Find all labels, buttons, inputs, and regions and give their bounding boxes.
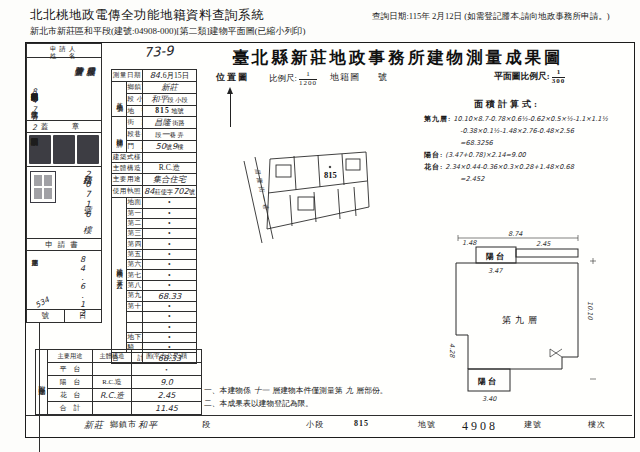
table-cell: 第十層: [127, 301, 142, 311]
calc-body: 2.34×0.44-0.36×0.3×0.28+1.48×0.68: [445, 163, 574, 171]
location-map-label: 位置圖: [216, 71, 249, 84]
scale-denominator: 1200: [299, 80, 317, 88]
table-cell: 50號9樓: [142, 141, 196, 153]
cell-text: 十一: [251, 386, 273, 395]
cell-text: 815: [155, 106, 169, 115]
cell-text: •: [168, 240, 171, 249]
footer-segment: 和平: [138, 419, 158, 432]
table-cell: 第九層: [127, 290, 142, 301]
table-cell: R.C.造: [93, 389, 132, 402]
table-cell: 主要用途: [48, 350, 93, 363]
cell-text: R.C.造: [159, 163, 181, 172]
query-date: 查詢日期:115年 2月12日 (如需登記謄本,請向地政事務所申請。): [372, 11, 610, 23]
table-cell: 第一層: [127, 208, 142, 218]
footer-segment: 地號: [418, 419, 436, 430]
stamp-seal: [77, 135, 99, 164]
table-cell: •: [142, 332, 196, 342]
dim-mid: 3.47: [488, 267, 503, 275]
table-cell: •: [142, 249, 196, 259]
table-cell: [142, 153, 196, 163]
cell-text: 九: [343, 386, 357, 395]
page-code-handwritten: 73-9: [144, 43, 174, 60]
cell-text: R.C.造: [102, 378, 121, 385]
cell-text: 9.0: [160, 378, 173, 387]
table-cell: 面(平方公尺)積: [132, 350, 202, 363]
cell-text: 莊使字: [154, 188, 173, 195]
no-day-row: 號 日: [27, 310, 101, 322]
table-cell: •: [142, 218, 196, 228]
table-cell: •: [142, 208, 196, 218]
footer-segment: 段: [202, 419, 211, 430]
table-row: 使用執照84莊使字702號: [112, 186, 197, 198]
calc-line: 陽台:(3.47+0.78)×2.14=9.00: [424, 149, 640, 161]
table-cell: 集合住宅: [142, 174, 196, 186]
cell-text: •: [168, 302, 171, 311]
calc-body: (3.47+0.78)×2.14=9.00: [445, 151, 525, 159]
cell-text: •: [168, 229, 171, 238]
table-cell: [93, 402, 132, 415]
calc-body: 10.10×8.7-0.78×0.6½-0.62×0.5×½-1.1×1.1½: [453, 115, 608, 123]
table-cell: 84.6月15日: [142, 70, 196, 82]
sheet-no-suffix: 號: [378, 71, 387, 84]
cell-text: •: [168, 323, 171, 332]
table-cell: 第四層: [127, 239, 142, 249]
table-cell: 68.33: [142, 290, 196, 301]
cell-text: •: [165, 366, 167, 373]
north-arrow-icon: [226, 87, 236, 127]
table-cell: •: [142, 260, 196, 270]
footer-divider: [26, 415, 632, 416]
cell-text: 集合住宅: [153, 174, 186, 184]
square-seal-icon: [30, 171, 56, 203]
table-cell: 主體構造: [112, 163, 143, 174]
dim-right: 10.10: [586, 301, 594, 320]
file-date-handwritten: 84.6.12: [78, 255, 87, 318]
table-cell: •: [142, 322, 196, 332]
table-cell: 陽 台: [48, 376, 93, 389]
table-cell: •: [142, 229, 196, 239]
table-cell: 第八層: [127, 280, 142, 290]
table-cell: 815 地號: [142, 106, 196, 117]
file-no-handwritten: 534: [34, 295, 51, 310]
area-calc: 第九層:10.10×8.7-0.78×0.6½-0.62×0.5×½-1.1×1…: [424, 113, 640, 185]
table-cell: 建物門牌: [112, 117, 127, 153]
table-cell: •: [142, 239, 196, 249]
table-row: 建築式樣: [112, 153, 197, 163]
table-cell: 2.45: [132, 389, 202, 402]
applicant-seal-area: [27, 133, 101, 167]
side-note-text: 本建物平面圖及建物面積係使用執照84莊使字第702號設計圖或竣工平面圖轉繪計算: [27, 87, 41, 132]
parcel-815-label: 815: [324, 170, 337, 180]
cell-text: 11.45: [155, 404, 178, 413]
cell-text: 2.45: [158, 391, 176, 400]
plan-scale: 平面圖比例尺:1300: [494, 69, 567, 85]
applicant-name-col1: 幸福建設公司: [84, 60, 97, 119]
cell-text: 二、本成果表以建物登記為限。: [204, 399, 313, 408]
cell-text: 樓: [177, 143, 183, 150]
table-row: 主要用途集合住宅: [112, 174, 197, 186]
cell-text: 段 小段: [168, 96, 188, 103]
table-row: 基地地號鄉鎮市區新莊: [112, 82, 197, 94]
cell-text: •: [168, 271, 171, 280]
annex-row: 花 台R.C.造2.45: [36, 389, 202, 402]
balcony-top-label: 陽台: [486, 251, 506, 261]
cell-text: 層部份。: [356, 386, 387, 395]
footer-segment: 815: [354, 419, 369, 428]
table-cell: [93, 363, 132, 376]
floor-label: 第九層: [502, 315, 541, 325]
table-cell: 9.0: [132, 376, 202, 389]
calc-head: 第九層:: [424, 115, 451, 123]
table-cell: R.C.造: [93, 376, 132, 389]
stamp-seal: [53, 135, 75, 164]
cell-text: 和平: [151, 94, 167, 104]
calc-body: =68.3256: [460, 139, 493, 147]
calc-head: 花台:: [424, 163, 443, 171]
table-row: 測量日期84.6月15日: [112, 70, 197, 82]
table-cell: [127, 312, 142, 322]
calc-line: -0.38×0.1½-1.48×2.76-0.48×2.56: [460, 125, 640, 137]
cell-text: 層建物本件僅測量第: [272, 386, 342, 395]
system-title: 北北桃地政電傳全功能地籍資料查詢系統: [30, 7, 264, 24]
application-label: 申請書: [27, 239, 101, 251]
cadastral-map-label: 地籍圖: [330, 71, 360, 84]
cell-text: 50: [155, 141, 165, 151]
calc-body: =2.452: [460, 175, 484, 183]
table-cell: 昌隆 街路: [142, 117, 196, 129]
table-cell: 和平段 小段: [142, 94, 196, 106]
annex-row: 陽 台R.C.造9.0: [36, 376, 202, 389]
no-label: 號: [27, 310, 65, 322]
table-cell: 主體構造: [93, 350, 132, 363]
cell-text: 702: [30, 105, 39, 132]
applicant-name-col2: 董事長陳公實: [72, 60, 85, 119]
seal-and-address: 松江路207號16樓: [27, 167, 101, 238]
table-cell: •: [132, 363, 202, 376]
table-cell: 第三層: [127, 229, 142, 239]
table-cell: 附屬建物: [36, 350, 48, 415]
table-cell: 花 台: [48, 389, 93, 402]
applicant-header: 申請人 姓 名: [27, 44, 101, 58]
table-cell: 地下層: [127, 332, 142, 342]
table-cell: 新莊: [142, 82, 196, 94]
plan-scale-label: 平面圖比例尺:: [494, 71, 550, 81]
area-calc-title: 面積計算式:: [474, 98, 540, 111]
location-map: 815 昌隆街一巷: [236, 147, 376, 249]
table-cell: 建築面積(平方公尺): [112, 198, 127, 353]
table-cell: 段一巷 弄: [142, 129, 196, 141]
footer-segment: 新莊: [84, 419, 104, 432]
table-cell: 平 台: [48, 363, 93, 376]
cell-text: 84: [30, 87, 39, 105]
cell-text: 6月15日: [163, 71, 190, 80]
cell-text: •: [168, 312, 171, 321]
dim-top: 8.74: [508, 231, 523, 238]
table-cell: 街 路: [127, 117, 142, 129]
day-label: 日: [65, 310, 102, 322]
table-row: 主體構造R.C.造: [112, 163, 197, 174]
scale-label: 比例尺:: [269, 73, 297, 83]
table-cell: R.C.造: [142, 163, 196, 174]
cell-text: •: [168, 198, 171, 207]
table-cell: 地面層: [127, 198, 142, 208]
stamp-seal: [29, 135, 51, 164]
annex-row: 合 計11.45: [36, 402, 202, 415]
main-info-table: 測量日期84.6月15日基地地號鄉鎮市區新莊段 小段和平段 小段地 號815 地…: [111, 69, 197, 364]
notes: 一、本建物係十一層建物本件僅測量第九層部份。二、本成果表以建物登記為限。: [204, 385, 514, 410]
applicant-address: 松江路207號16樓: [82, 169, 93, 219]
footer-strip: 新莊鄉鎮市和平段小段815地號4908建號樓次: [26, 417, 632, 433]
annex-row: 平 台•: [36, 363, 202, 376]
application-no-box: 莊建測字第 84.6.12 534: [27, 251, 101, 310]
table-cell: 基地地號: [112, 82, 127, 117]
calc-line: =2.452: [460, 173, 640, 185]
document-frame: 73-9 臺北縣新莊地政事務所建物測量成果圖 申請人 姓 名 幸福建設公司 董事…: [25, 42, 635, 438]
table-cell: 主要用途: [112, 174, 143, 186]
applicant-column: 申請人 姓 名 幸福建設公司 董事長陳公實 蓋 章 松江路207號16樓 申請書…: [26, 43, 102, 323]
footer-segment: 建號: [524, 419, 542, 430]
annex-header-row: 附屬建物主要用途主體構造面(平方公尺)積: [36, 350, 202, 363]
table-cell: 建築式樣: [112, 153, 143, 163]
table-cell: 第五層: [127, 249, 142, 259]
table-cell: •: [142, 280, 196, 290]
calc-line: 第九層:10.10×8.7-0.78×0.6½-0.62×0.5×½-1.1×1…: [424, 113, 640, 125]
floor-row: 建築面積(平方公尺)地面層•: [112, 198, 197, 208]
table-cell: •: [142, 312, 196, 322]
cell-text: •: [168, 219, 171, 228]
cell-text: 地號: [170, 107, 184, 114]
cell-text: 街路: [171, 119, 185, 126]
cell-text: 702: [173, 186, 189, 196]
footer-segment: 樓次: [588, 419, 606, 430]
plan-scale-denominator: 300: [552, 78, 566, 86]
footer-segment: 鄉鎮市: [110, 419, 137, 430]
dim-top-right: 2.45: [536, 240, 551, 248]
annex-table: 附屬建物主要用途主體構造面(平方公尺)積平 台•陽 台R.C.造9.0花 台R.…: [35, 349, 202, 415]
footer-segment: 小段: [306, 419, 324, 430]
calc-line: =68.3256: [460, 137, 640, 149]
cell-text: •: [168, 250, 171, 259]
table-cell: 第二層: [127, 218, 142, 228]
cell-text: 84: [144, 186, 154, 196]
applicant-header-line1: 申請人: [27, 45, 101, 52]
table-cell: 第六層: [127, 260, 142, 270]
calc-body: -0.38×0.1½-1.48×2.76-0.48×2.56: [460, 127, 574, 135]
document-subtitle: 新北市新莊區和平段(建號:04908-000)[第二類]建物平面圖(已縮小列印): [30, 25, 305, 38]
table-cell: 鄉鎮市區: [127, 82, 142, 94]
table-cell: 11.45: [132, 402, 202, 415]
cell-text: 新莊: [161, 82, 177, 92]
note-line: 一、本建物係十一層建物本件僅測量第九層部份。: [204, 385, 514, 398]
cell-text: 一: [161, 129, 169, 139]
table-cell: 測量日期: [112, 70, 143, 82]
table-cell: •: [142, 198, 196, 208]
cell-text: 68.33: [158, 291, 181, 301]
document-title: 臺北縣新莊地政事務所建物測量成果圖: [208, 47, 588, 69]
table-cell: 合 計: [48, 402, 93, 415]
table-cell: 使用執照: [112, 186, 143, 198]
table-cell: 段巷弄: [127, 129, 142, 141]
table-row: 建物門牌街 路昌隆 街路: [112, 117, 197, 129]
table-cell: [127, 322, 142, 332]
cell-text: 號: [189, 188, 195, 195]
table-cell: •: [142, 301, 196, 311]
cell-text: •: [168, 209, 171, 218]
cell-text: •: [168, 333, 171, 342]
dim-left: 4.28: [448, 343, 456, 358]
cell-text: 84.: [150, 70, 163, 80]
table-cell: •: [142, 270, 196, 280]
cell-text: •: [168, 281, 171, 290]
table-cell: 門 牌: [127, 141, 142, 153]
note-line: 二、本成果表以建物登記為限。: [204, 398, 514, 411]
calc-head: 陽台:: [424, 151, 443, 159]
dim-top-left: 1.48: [462, 239, 477, 247]
footer-segment: 4908: [462, 419, 498, 434]
cell-text: R.C.造: [100, 391, 124, 400]
table-cell: 段 小段: [127, 94, 142, 106]
cell-text: 一、本建物係: [204, 386, 251, 395]
location-map-scale: 比例尺:11200: [269, 71, 319, 87]
cell-text: •: [168, 260, 171, 269]
table-cell: 第七層: [127, 270, 142, 280]
calc-line: 花台:2.34×0.44-0.36×0.3×0.28+1.48×0.68: [424, 161, 640, 173]
cell-text: 昌隆: [154, 117, 170, 127]
cell-text: 弄: [176, 131, 184, 138]
table-cell: 地 號: [127, 106, 142, 117]
table-cell: 84莊使字702號: [142, 186, 196, 198]
